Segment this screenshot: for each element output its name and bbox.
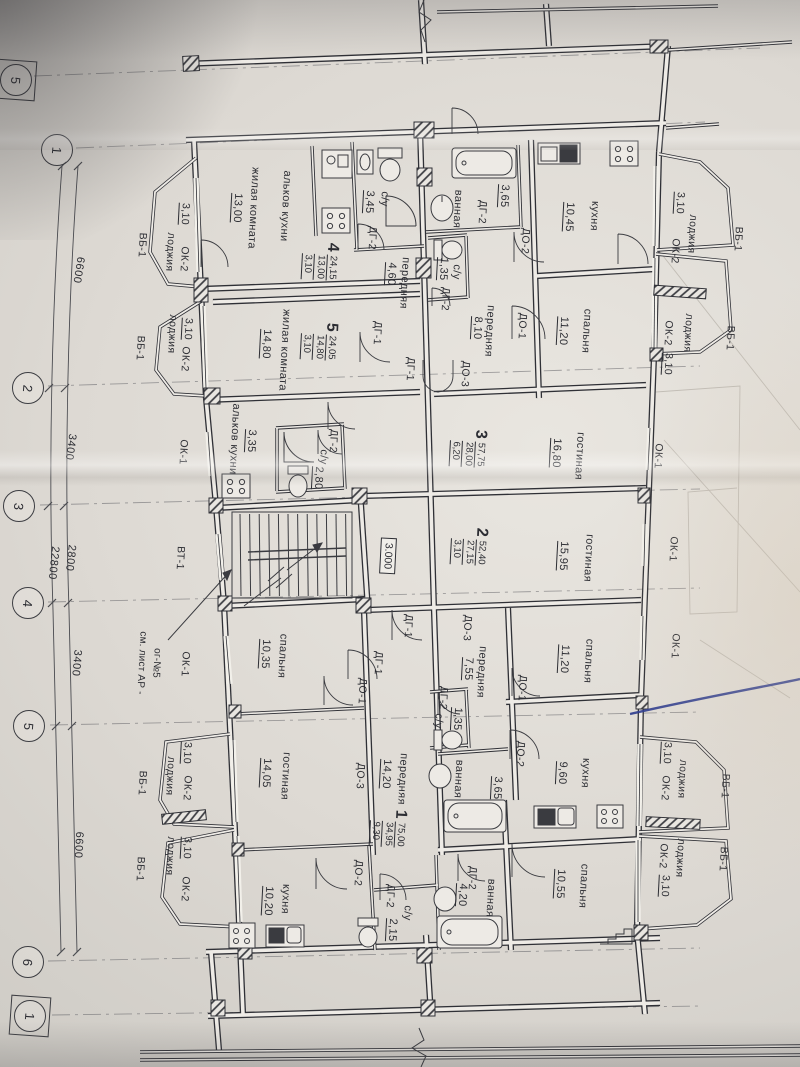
loggia-area: 3,10 bbox=[662, 353, 674, 376]
room-area: 14,80 bbox=[260, 329, 273, 359]
window-type-tag: ВБ-1 bbox=[719, 773, 731, 798]
room-label: ванная bbox=[452, 760, 465, 799]
room-area: 14,20 bbox=[380, 759, 393, 789]
counter-icon bbox=[322, 150, 352, 178]
bathtub-icon bbox=[452, 148, 516, 178]
apartment-living-area: 27,15 bbox=[462, 539, 476, 565]
room-label: альков кухни bbox=[227, 403, 242, 475]
sheet-note-line: ог-№5 bbox=[150, 648, 162, 678]
stove-icon bbox=[597, 805, 623, 828]
room-label: спальня bbox=[581, 638, 594, 683]
window-type-tag: ВБ-1 bbox=[724, 325, 736, 350]
apartment-kitchen-area: 3,10 bbox=[449, 538, 463, 564]
kitchen-sink-icon bbox=[538, 143, 580, 164]
apartment-kitchen-area: 3,10 bbox=[300, 253, 314, 279]
sink-icon bbox=[431, 195, 453, 221]
window-type-tag: ВБ-1 bbox=[134, 335, 146, 360]
room-area: 9,60 bbox=[556, 761, 568, 785]
room-area: 11,20 bbox=[557, 316, 569, 345]
room-area: 15,95 bbox=[557, 541, 570, 571]
apartment-number: 2 bbox=[474, 527, 489, 537]
door-type-tag: ДГ-2 bbox=[327, 429, 339, 453]
elevation-mark: 3.000 bbox=[379, 537, 397, 574]
bathtub-icon bbox=[444, 800, 506, 832]
sheet-note-line: см. лист АР - bbox=[134, 631, 147, 695]
grid-axis-marker: 5 bbox=[0, 64, 32, 96]
wall-cores bbox=[183, 0, 668, 1050]
apartment-kitchen-area: 9,30 bbox=[368, 820, 382, 846]
room-area: 2,80 bbox=[312, 466, 324, 490]
stove-icon bbox=[610, 141, 638, 166]
room-label: ванная bbox=[484, 879, 497, 918]
grid-axis-marker: 1 bbox=[14, 1000, 46, 1032]
window-type-tag: ОК-1 bbox=[667, 536, 679, 562]
window-type-tag: ВБ-1 bbox=[136, 232, 148, 257]
loggia-area: 3,10 bbox=[181, 837, 193, 860]
room-area: 10,35 bbox=[259, 639, 272, 669]
room-area: 3,65 bbox=[491, 776, 503, 800]
room-area: 3,65 bbox=[498, 184, 510, 208]
apartment-living-area: 14,80 bbox=[312, 334, 326, 360]
room-label: кухня bbox=[279, 884, 292, 915]
room-area: 2,15 bbox=[386, 918, 398, 942]
room-label: с/у bbox=[378, 191, 390, 207]
kitchen-sink-icon bbox=[534, 806, 576, 828]
grid-axis-marker: 4 bbox=[12, 587, 44, 619]
plan-drawing bbox=[0, 0, 800, 1067]
window-type-tag: ОК-1 bbox=[652, 443, 664, 469]
apartment-total-area: 24,15 bbox=[325, 254, 339, 280]
toilet-icon bbox=[378, 148, 402, 181]
apartment-total-area: 52,40 bbox=[474, 539, 488, 565]
window-type-tag: ВБ-1 bbox=[136, 770, 148, 795]
bathtub-icon bbox=[437, 916, 502, 948]
dimension-label: 6600 bbox=[72, 831, 84, 858]
window-type-tag: ОК-2 bbox=[179, 346, 191, 372]
room-label: передняя bbox=[482, 305, 496, 357]
grid-axis-marker: 2 bbox=[12, 372, 44, 404]
room-area: 11,20 bbox=[558, 644, 570, 673]
apartment-number: 1 bbox=[393, 809, 408, 819]
window-type-tag: ВБ-1 bbox=[134, 856, 146, 881]
stove-icon bbox=[322, 208, 350, 233]
room-label: с/у bbox=[432, 713, 444, 729]
room-label: кухня bbox=[588, 201, 601, 232]
room-label: передняя bbox=[397, 257, 411, 309]
apartment-kitchen-area: 6,20 bbox=[448, 440, 462, 466]
window-type-tag: ОК-1 bbox=[669, 633, 681, 659]
loggia-area: 3,10 bbox=[181, 742, 193, 765]
room-area: 14,05 bbox=[260, 758, 273, 788]
door-type-tag: ДО-1 bbox=[356, 678, 368, 705]
apartment-living-area: 28,00 bbox=[461, 441, 475, 467]
room-area: 10,55 bbox=[554, 869, 567, 899]
apartment-total-area: 75,00 bbox=[393, 821, 407, 847]
loggia-label: лоджия bbox=[676, 759, 689, 798]
loggia-label: лоджия bbox=[164, 232, 177, 271]
shower-icon bbox=[386, 196, 416, 226]
apartment-living-area: 34,95 bbox=[381, 821, 395, 847]
window-type-tag: ОК-2 bbox=[657, 843, 669, 869]
sink-icon bbox=[429, 764, 451, 788]
door-type-tag: ДГ-2 bbox=[366, 226, 378, 250]
toilet-icon bbox=[288, 466, 308, 497]
dimension-label: 3400 bbox=[69, 649, 82, 677]
door-type-tag: ДО-3 bbox=[459, 361, 471, 388]
room-area: 7,55 bbox=[462, 657, 474, 681]
room-area: 3,45 bbox=[363, 190, 375, 214]
room-area: 8,10 bbox=[471, 316, 483, 340]
apartment-number: 5 bbox=[324, 322, 339, 332]
loggia-label: лоджия bbox=[674, 838, 687, 877]
door-type-tag: ДГ-1 bbox=[371, 321, 383, 345]
loggia-label: лоджия bbox=[686, 214, 699, 253]
pen-stroke bbox=[630, 679, 800, 714]
window-type-tag: ВБ-1 bbox=[717, 846, 729, 871]
window-type-tag: ОК-2 bbox=[662, 320, 674, 346]
room-area: 1,35 bbox=[437, 257, 449, 281]
room-area: 16,80 bbox=[550, 438, 563, 468]
room-label: кухня bbox=[579, 758, 592, 789]
staircase bbox=[168, 512, 352, 640]
door-type-tag: ДО-1 bbox=[516, 675, 528, 702]
room-area: 1,35 bbox=[451, 707, 463, 731]
door-type-tag: ДГ-2 bbox=[437, 686, 449, 710]
room-label: ванная bbox=[451, 190, 464, 229]
window-type-tag: ОК-1 bbox=[179, 651, 191, 677]
loggia-area: 3,10 bbox=[659, 875, 671, 898]
apartment-summary: 252,4027,153,10 bbox=[449, 526, 488, 566]
room-label: передняя bbox=[395, 753, 409, 805]
window-type-tag: ВБ-1 bbox=[732, 226, 744, 251]
room-label: гостиная bbox=[581, 534, 594, 582]
apartment-summary: 424,1513,003,10 bbox=[300, 241, 339, 281]
room-label: гостиная bbox=[572, 432, 585, 480]
toilet-icon bbox=[358, 918, 378, 947]
loggia-area: 3,10 bbox=[661, 742, 673, 765]
grid-axis-marker: 5 bbox=[13, 710, 45, 742]
dimension-label: 2800 bbox=[63, 544, 77, 572]
room-area: 3,35 bbox=[245, 429, 257, 453]
window-type-tag: ОК-2 bbox=[178, 246, 190, 272]
door-type-tag: ДГ-2 bbox=[476, 200, 488, 224]
grid-axis-marker: 6 bbox=[12, 946, 44, 978]
window-type-tag: ОК-2 bbox=[659, 775, 671, 801]
room-label: спальня bbox=[275, 633, 288, 678]
room-area: 13,00 bbox=[231, 193, 244, 223]
stove-icon bbox=[229, 923, 255, 948]
shower-icon bbox=[284, 432, 314, 462]
door-type-tag: ДГ-2 bbox=[466, 866, 478, 890]
apartment-number: 4 bbox=[325, 242, 340, 252]
grid-axis-marker: 1 bbox=[41, 134, 73, 166]
room-label: передняя bbox=[474, 646, 488, 698]
apartment-summary: 524,0514,803,10 bbox=[299, 321, 338, 361]
door-type-tag: ДГ-1 bbox=[402, 614, 414, 638]
grid-axis-marker: 3 bbox=[3, 490, 35, 522]
loggia-area: 3,10 bbox=[179, 203, 191, 226]
apartment-summary: 357,7528,006,20 bbox=[448, 428, 487, 468]
sink-icon bbox=[357, 150, 373, 174]
apartment-total-area: 24,05 bbox=[324, 334, 338, 360]
door-type-tag: ДГ-2 bbox=[439, 287, 451, 311]
room-area: 10,20 bbox=[262, 886, 275, 916]
loggia-area: 3,10 bbox=[182, 318, 194, 341]
room-label: с/у bbox=[450, 264, 462, 280]
window-type-tag: ОК-2 bbox=[179, 876, 191, 902]
room-label: спальня bbox=[576, 863, 589, 908]
room-area: 4,60 bbox=[385, 262, 397, 286]
window-type-tag: ВТ-1 bbox=[174, 546, 186, 570]
load-bearing-walls bbox=[183, 0, 668, 1050]
dimension-label: 22800 bbox=[46, 546, 60, 581]
window-type-tag: ОК-1 bbox=[177, 439, 189, 465]
toilet-icon bbox=[434, 730, 462, 750]
loggia-label: лоджия bbox=[166, 314, 179, 353]
dimension-label: 3400 bbox=[63, 433, 78, 461]
door-type-tag: ДО-3 bbox=[461, 615, 473, 642]
door-type-tag: ДО-2 bbox=[519, 228, 531, 255]
room-label: альков кухни bbox=[278, 170, 293, 242]
room-label: спальня bbox=[579, 308, 592, 353]
room-area: 10,45 bbox=[563, 202, 576, 232]
sink-icon bbox=[434, 887, 456, 911]
door-type-tag: ДО-3 bbox=[354, 763, 366, 790]
apartment-total-area: 57,75 bbox=[473, 441, 487, 467]
door-type-tag: ДО-1 bbox=[516, 313, 528, 340]
apartment-summary: 175,0034,959,30 bbox=[368, 808, 407, 848]
loggia-area: 3,10 bbox=[674, 192, 686, 215]
loggia-label: лоджия bbox=[164, 836, 177, 875]
kitchen-sink-icon bbox=[266, 925, 304, 947]
door-type-tag: ДГ-2 bbox=[384, 884, 396, 908]
door-type-tag: ДО-2 bbox=[514, 741, 526, 768]
apartment-kitchen-area: 3,10 bbox=[299, 333, 313, 359]
window-type-tag: ОК-2 bbox=[669, 238, 681, 264]
loggia-label: лоджия bbox=[682, 313, 695, 352]
room-label: гостиная bbox=[278, 752, 291, 800]
apartment-living-area: 13,00 bbox=[313, 254, 327, 280]
window-type-tag: ОК-2 bbox=[181, 775, 193, 801]
door-type-tag: ДО-2 bbox=[352, 860, 364, 887]
loggia-label: лоджия bbox=[164, 756, 177, 795]
pencil-marks bbox=[656, 252, 800, 698]
door-type-tag: ДГ-1 bbox=[372, 651, 384, 675]
apartment-number: 3 bbox=[473, 429, 488, 439]
door-type-tag: ДГ-1 bbox=[404, 357, 416, 381]
blueprint-photo: жилая комната13,00альков кухнис/у3,45пер… bbox=[0, 0, 800, 1067]
room-label: с/у bbox=[401, 905, 413, 921]
stove-icon bbox=[222, 474, 250, 498]
